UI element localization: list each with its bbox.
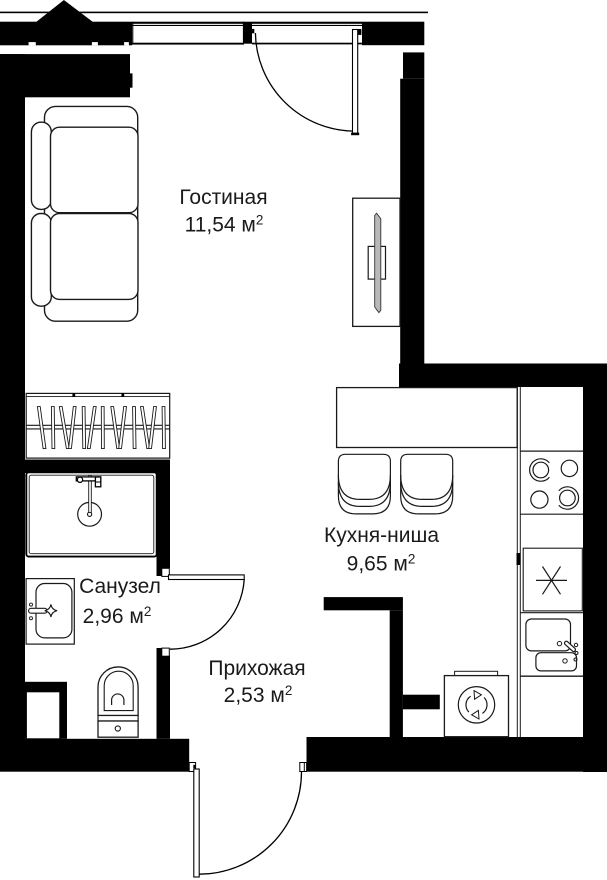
svg-text:Санузел: Санузел: [79, 575, 161, 598]
svg-text:11,54 м2: 11,54 м2: [185, 213, 264, 237]
svg-text:2,53 м2: 2,53 м2: [224, 683, 293, 707]
svg-text:Гостиная: Гостиная: [179, 186, 267, 209]
svg-text:Прихожая: Прихожая: [208, 657, 305, 680]
svg-text:Кухня-ниша: Кухня-ниша: [324, 524, 439, 547]
svg-text:2,96 м2: 2,96 м2: [83, 604, 152, 628]
svg-text:9,65 м2: 9,65 м2: [347, 552, 416, 576]
